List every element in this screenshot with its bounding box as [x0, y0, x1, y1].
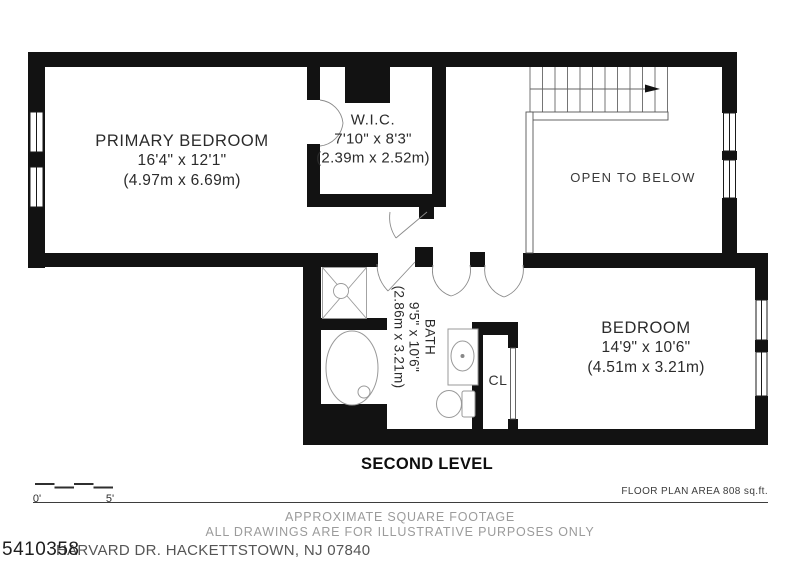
- scale-end-label: 5': [106, 493, 114, 505]
- level-title: SECOND LEVEL: [361, 454, 493, 474]
- closet-door: [511, 348, 516, 419]
- wic-dims-m: (2.39m x 2.52m): [316, 149, 430, 168]
- scale-bar: [35, 484, 113, 488]
- floor-area-note: FLOOR PLAN AREA 808 sq.ft.: [621, 486, 768, 497]
- bath-dims-ft: 9'5" x 10'6": [406, 286, 422, 389]
- bath-dims-m: (2.86m x 3.21m): [391, 286, 407, 389]
- sink-vanity: [448, 329, 478, 385]
- scale-start-label: 0': [33, 493, 41, 505]
- primary-bedroom-label: PRIMARY BEDROOM 16'4" x 12'1" (4.97m x 6…: [95, 131, 268, 191]
- stair-direction-arrow-icon: [645, 85, 660, 93]
- bedroom-dims-m: (4.51m x 3.21m): [587, 358, 704, 378]
- disclaimer-line1: APPROXIMATE SQUARE FOOTAGE: [285, 510, 515, 524]
- disclaimer-line2: ALL DRAWINGS ARE FOR ILLUSTRATIVE PURPOS…: [205, 525, 594, 539]
- floor-plan-page: PRIMARY BEDROOM 16'4" x 12'1" (4.97m x 6…: [0, 0, 800, 565]
- bathtub: [326, 331, 378, 405]
- property-address: HARVARD DR. HACKETTSTOWN, NJ 07840: [56, 542, 370, 559]
- toilet: [437, 391, 476, 418]
- shower: [323, 268, 367, 319]
- closet-label: CL: [489, 370, 508, 390]
- wic-label: W.I.C. 7'10" x 8'3" (2.39m x 2.52m): [316, 111, 430, 168]
- footer-divider: [33, 502, 768, 503]
- primary-bedroom-dims-m: (4.97m x 6.69m): [95, 171, 268, 191]
- wic-dims-ft: 7'10" x 8'3": [316, 130, 430, 149]
- open-to-below-label: OPEN TO BELOW: [570, 168, 696, 188]
- bedroom-label: BEDROOM 14'9" x 10'6" (4.51m x 3.21m): [587, 318, 704, 378]
- wic-name: W.I.C.: [316, 111, 430, 130]
- listing-id: 5410358: [2, 539, 79, 561]
- primary-bedroom-dims-ft: 16'4" x 12'1": [95, 151, 268, 171]
- bedroom-dims-ft: 14'9" x 10'6": [587, 338, 704, 358]
- stairs: [530, 67, 668, 112]
- floor-plan-drawing: [0, 0, 800, 565]
- bath-label: BATH 9'5" x 10'6" (2.86m x 3.21m): [391, 286, 438, 389]
- bath-name: BATH: [422, 286, 438, 389]
- primary-bedroom-name: PRIMARY BEDROOM: [95, 131, 268, 151]
- bedroom-name: BEDROOM: [587, 318, 704, 338]
